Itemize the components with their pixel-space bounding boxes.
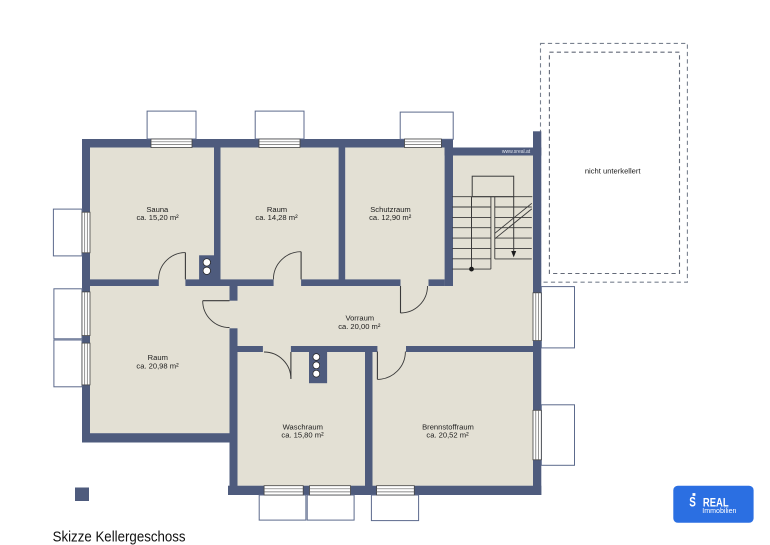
- svg-text:www.sreal.at: www.sreal.at: [502, 149, 531, 155]
- svg-text:ca. 14,28 m²: ca. 14,28 m²: [255, 213, 298, 222]
- svg-text:Immobilien: Immobilien: [702, 508, 736, 515]
- svg-text:ca. 15,20 m²: ca. 15,20 m²: [136, 213, 179, 222]
- svg-text:S: S: [689, 493, 696, 509]
- svg-text:ca. 20,98 m²: ca. 20,98 m²: [136, 361, 179, 370]
- svg-text:nicht unterkellert: nicht unterkellert: [585, 167, 642, 176]
- svg-text:ca. 15,80 m²: ca. 15,80 m²: [281, 431, 324, 440]
- svg-text:ca. 20,00 m²: ca. 20,00 m²: [338, 322, 381, 331]
- svg-text:Skizze Kellergeschoss: Skizze Kellergeschoss: [53, 530, 186, 545]
- svg-text:ca. 12,90 m²: ca. 12,90 m²: [369, 213, 412, 222]
- svg-text:ca. 20,52 m²: ca. 20,52 m²: [426, 431, 469, 440]
